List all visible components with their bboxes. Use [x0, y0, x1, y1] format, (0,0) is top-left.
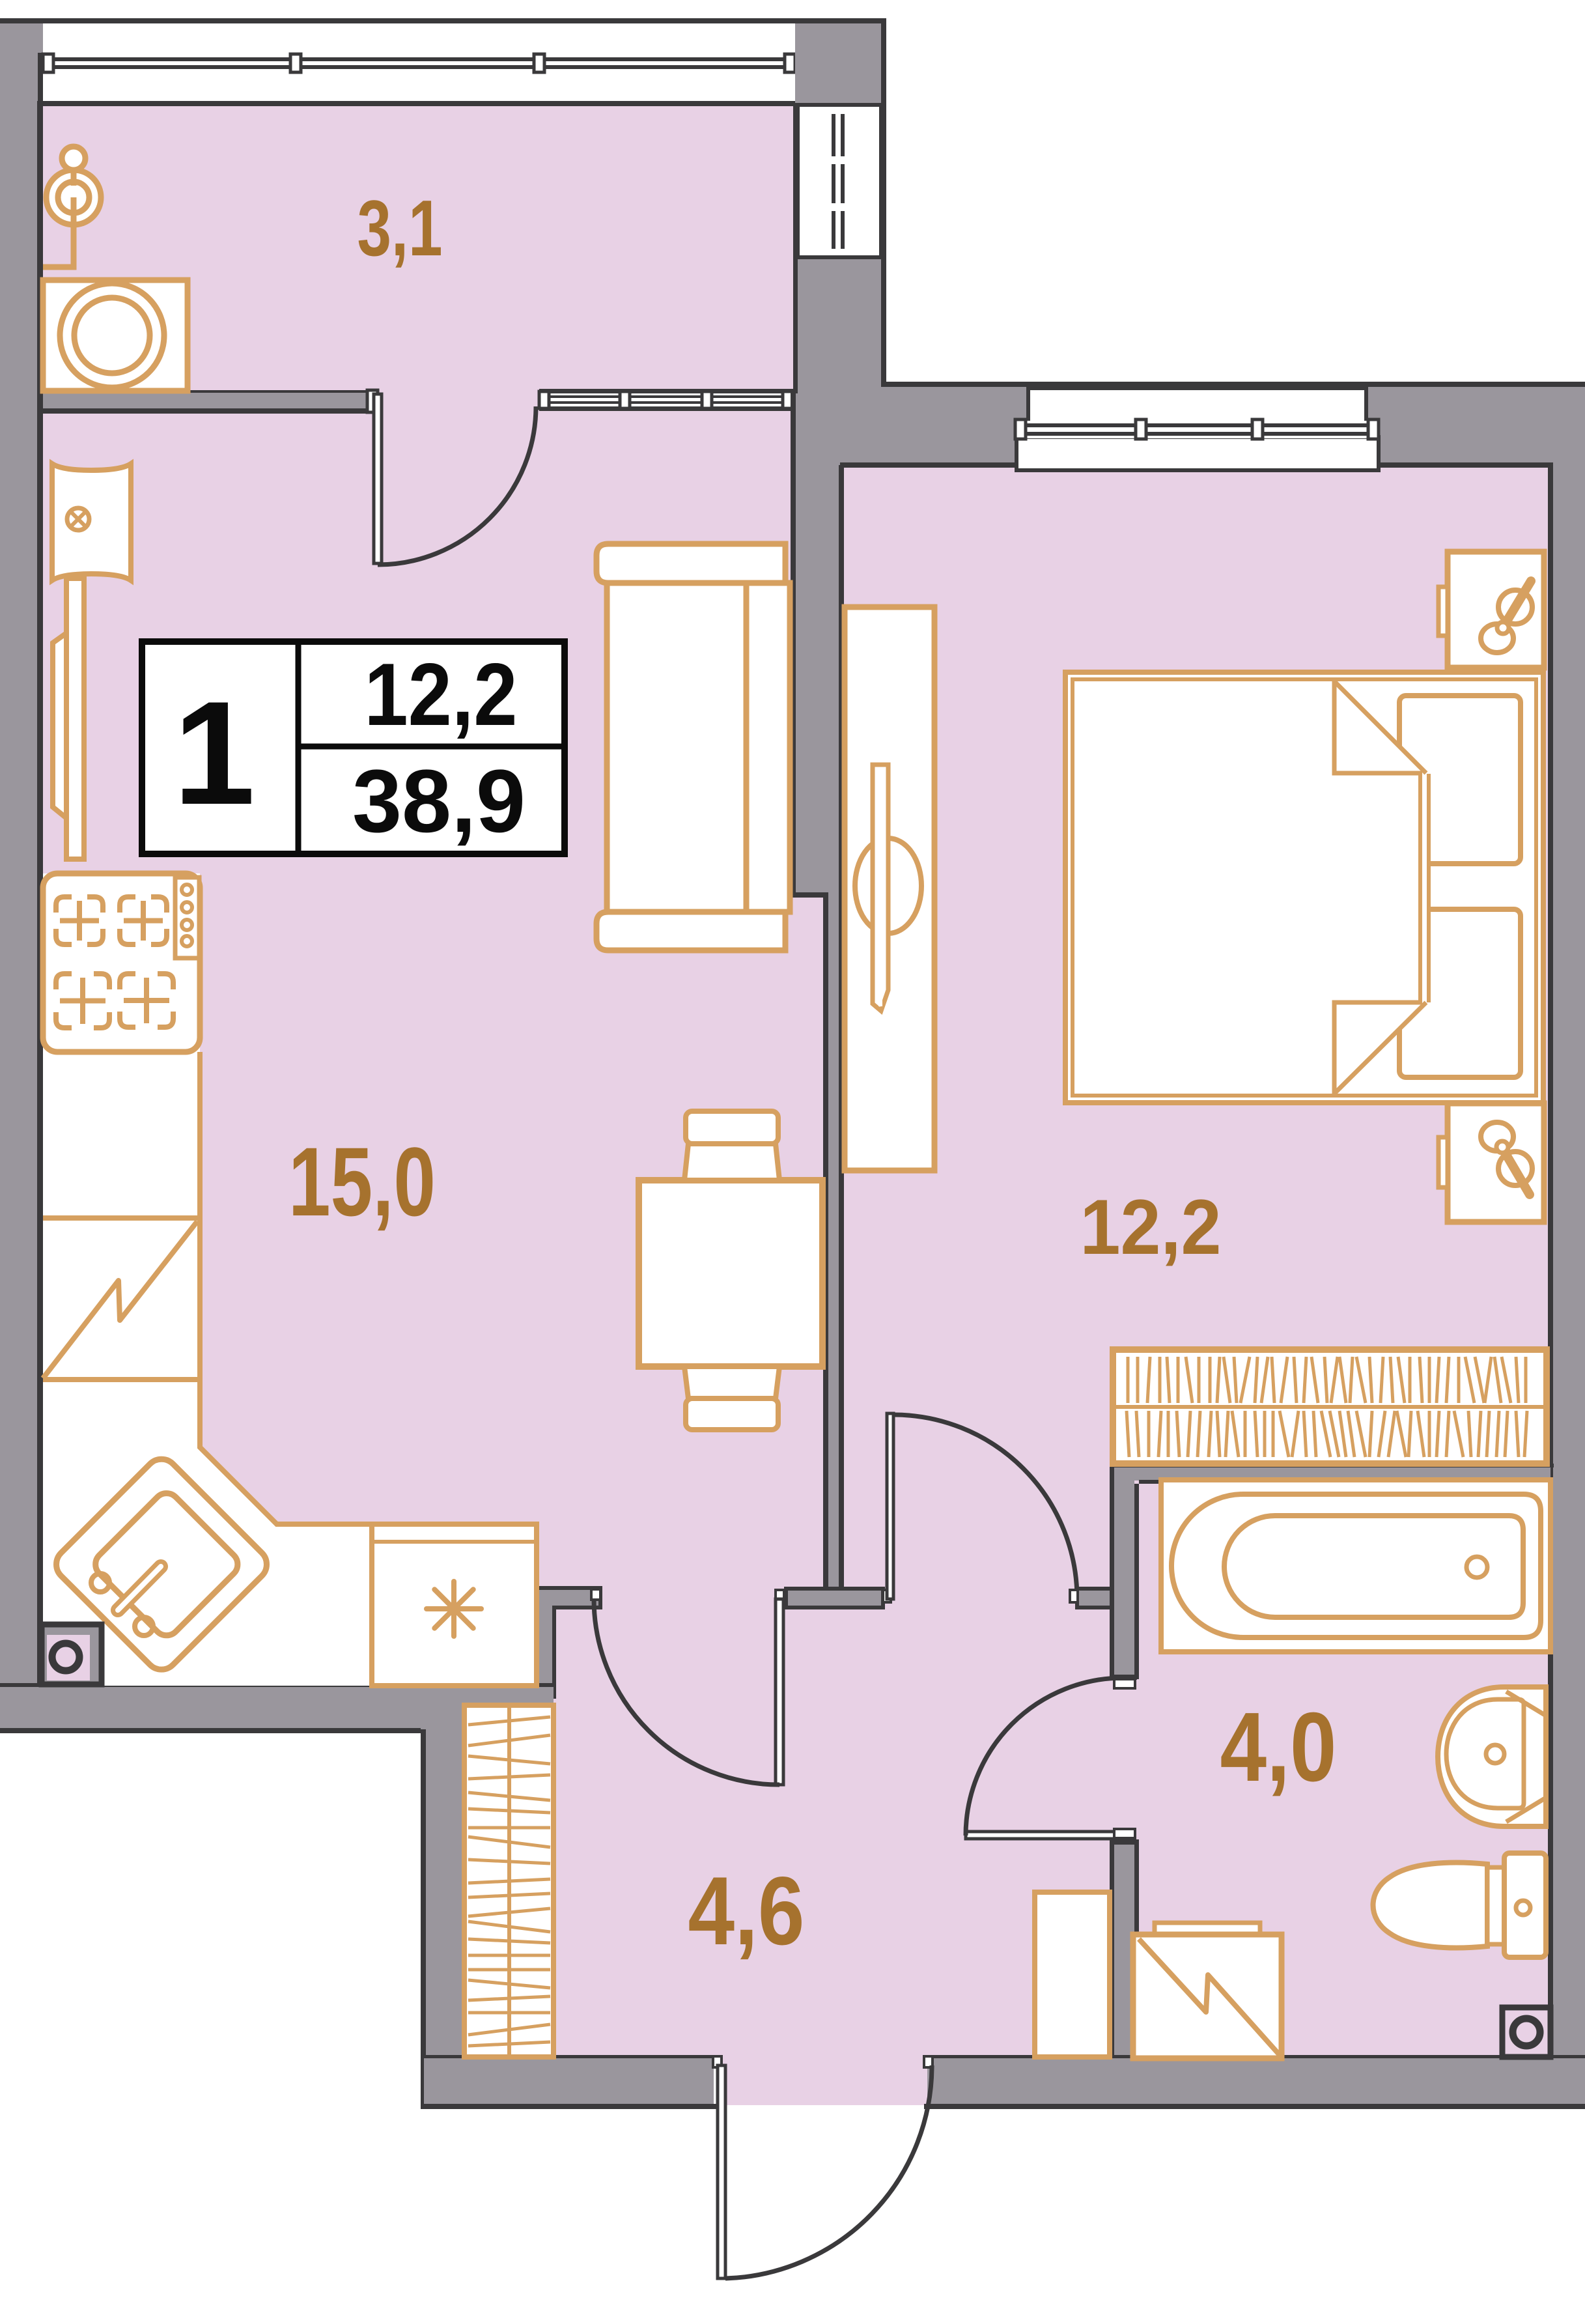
svg-text:15,0: 15,0	[288, 1127, 436, 1236]
svg-text:38,9: 38,9	[352, 752, 526, 851]
svg-text:1: 1	[173, 670, 255, 835]
svg-text:12,2: 12,2	[1080, 1183, 1222, 1271]
svg-text:12,2: 12,2	[365, 645, 518, 744]
svg-text:3,1: 3,1	[358, 184, 443, 272]
svg-text:4,6: 4,6	[688, 1856, 805, 1965]
svg-text:4,0: 4,0	[1220, 1692, 1337, 1802]
